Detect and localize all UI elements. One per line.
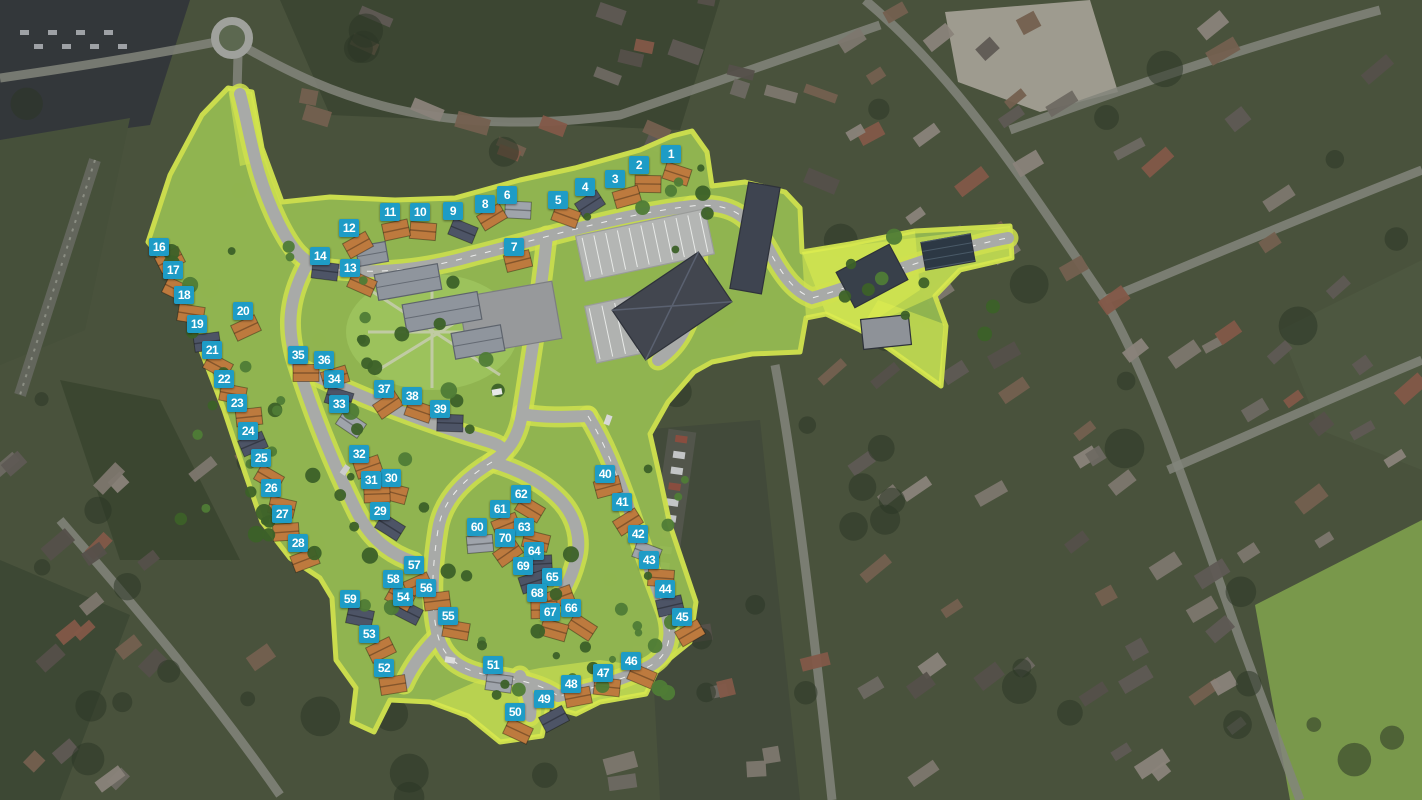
plot-marker-1[interactable]: 1 <box>661 145 681 163</box>
plot-marker-4[interactable]: 4 <box>575 178 595 196</box>
plot-marker-14[interactable]: 14 <box>310 247 330 265</box>
plot-marker-57[interactable]: 57 <box>404 556 424 574</box>
plot-marker-3[interactable]: 3 <box>605 170 625 188</box>
plot-marker-27[interactable]: 27 <box>272 505 292 523</box>
plot-marker-40[interactable]: 40 <box>595 465 615 483</box>
plot-marker-36[interactable]: 36 <box>314 351 334 369</box>
plot-marker-22[interactable]: 22 <box>214 370 234 388</box>
plot-marker-16[interactable]: 16 <box>149 238 169 256</box>
plot-marker-38[interactable]: 38 <box>402 387 422 405</box>
plot-marker-44[interactable]: 44 <box>655 580 675 598</box>
plot-marker-61[interactable]: 61 <box>490 500 510 518</box>
plot-marker-60[interactable]: 60 <box>467 518 487 536</box>
plot-marker-37[interactable]: 37 <box>374 380 394 398</box>
plot-marker-8[interactable]: 8 <box>475 195 495 213</box>
plot-marker-67[interactable]: 67 <box>540 603 560 621</box>
plot-marker-19[interactable]: 19 <box>187 315 207 333</box>
plot-marker-5[interactable]: 5 <box>548 191 568 209</box>
plot-marker-31[interactable]: 31 <box>361 471 381 489</box>
plot-marker-47[interactable]: 47 <box>593 664 613 682</box>
site-map: 1234567891011121314161718192021222324252… <box>0 0 1422 800</box>
plot-marker-34[interactable]: 34 <box>324 370 344 388</box>
plot-marker-39[interactable]: 39 <box>430 400 450 418</box>
plot-marker-54[interactable]: 54 <box>393 588 413 606</box>
plot-markers-layer: 1234567891011121314161718192021222324252… <box>0 0 1422 800</box>
plot-marker-9[interactable]: 9 <box>443 202 463 220</box>
plot-marker-53[interactable]: 53 <box>359 625 379 643</box>
plot-marker-45[interactable]: 45 <box>672 608 692 626</box>
plot-marker-20[interactable]: 20 <box>233 302 253 320</box>
plot-marker-2[interactable]: 2 <box>629 156 649 174</box>
plot-marker-70[interactable]: 70 <box>495 529 515 547</box>
plot-marker-7[interactable]: 7 <box>504 238 524 256</box>
plot-marker-18[interactable]: 18 <box>174 286 194 304</box>
plot-marker-58[interactable]: 58 <box>383 570 403 588</box>
plot-marker-32[interactable]: 32 <box>349 445 369 463</box>
plot-marker-6[interactable]: 6 <box>497 186 517 204</box>
plot-marker-48[interactable]: 48 <box>561 675 581 693</box>
plot-marker-51[interactable]: 51 <box>483 656 503 674</box>
plot-marker-12[interactable]: 12 <box>339 219 359 237</box>
plot-marker-13[interactable]: 13 <box>340 259 360 277</box>
plot-marker-42[interactable]: 42 <box>628 525 648 543</box>
plot-marker-24[interactable]: 24 <box>238 422 258 440</box>
plot-marker-66[interactable]: 66 <box>561 599 581 617</box>
plot-marker-33[interactable]: 33 <box>329 395 349 413</box>
plot-marker-46[interactable]: 46 <box>621 652 641 670</box>
plot-marker-63[interactable]: 63 <box>514 518 534 536</box>
plot-marker-49[interactable]: 49 <box>534 690 554 708</box>
plot-marker-29[interactable]: 29 <box>370 502 390 520</box>
plot-marker-30[interactable]: 30 <box>381 469 401 487</box>
plot-marker-59[interactable]: 59 <box>340 590 360 608</box>
plot-marker-62[interactable]: 62 <box>511 485 531 503</box>
plot-marker-52[interactable]: 52 <box>374 659 394 677</box>
plot-marker-69[interactable]: 69 <box>513 557 533 575</box>
plot-marker-28[interactable]: 28 <box>288 534 308 552</box>
plot-marker-56[interactable]: 56 <box>416 579 436 597</box>
plot-marker-35[interactable]: 35 <box>288 346 308 364</box>
plot-marker-10[interactable]: 10 <box>410 203 430 221</box>
plot-marker-11[interactable]: 11 <box>380 203 400 221</box>
plot-marker-68[interactable]: 68 <box>527 584 547 602</box>
plot-marker-21[interactable]: 21 <box>202 341 222 359</box>
plot-marker-43[interactable]: 43 <box>639 551 659 569</box>
plot-marker-25[interactable]: 25 <box>251 449 271 467</box>
plot-marker-41[interactable]: 41 <box>612 493 632 511</box>
plot-marker-26[interactable]: 26 <box>261 479 281 497</box>
plot-marker-23[interactable]: 23 <box>227 394 247 412</box>
plot-marker-55[interactable]: 55 <box>438 607 458 625</box>
plot-marker-50[interactable]: 50 <box>505 703 525 721</box>
plot-marker-17[interactable]: 17 <box>163 261 183 279</box>
